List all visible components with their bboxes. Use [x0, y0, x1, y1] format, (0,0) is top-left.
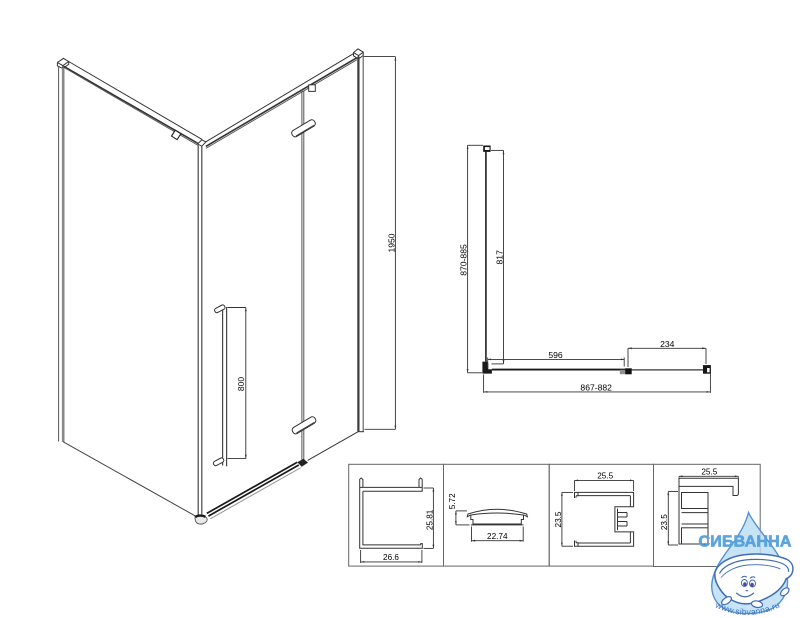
- svg-text:22.74: 22.74: [487, 532, 508, 541]
- svg-text:23.5: 23.5: [660, 514, 669, 530]
- svg-text:26.6: 26.6: [383, 553, 399, 562]
- svg-text:1950: 1950: [386, 233, 396, 252]
- svg-text:867-882: 867-882: [580, 382, 612, 392]
- svg-text:800: 800: [236, 377, 246, 391]
- svg-text:СИБВАННА: СИБВАННА: [699, 533, 792, 550]
- svg-text:234: 234: [660, 339, 675, 349]
- svg-text:870-885: 870-885: [459, 244, 469, 276]
- svg-text:25.5: 25.5: [701, 468, 717, 477]
- svg-text:5.72: 5.72: [448, 493, 457, 509]
- svg-text:25.5: 25.5: [597, 472, 613, 481]
- svg-text:23.5: 23.5: [554, 511, 563, 527]
- svg-text:25.81: 25.81: [425, 509, 434, 530]
- svg-text:596: 596: [548, 350, 563, 360]
- svg-text:817: 817: [495, 250, 505, 265]
